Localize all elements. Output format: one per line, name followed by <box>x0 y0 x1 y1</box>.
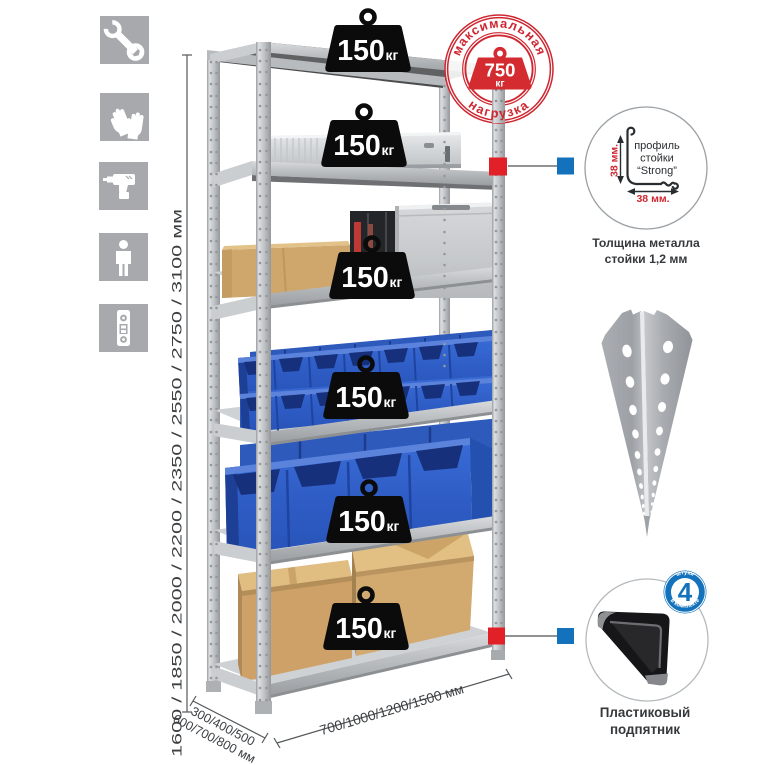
svg-text:700/1000/1200/1500 мм: 700/1000/1200/1500 мм <box>318 681 466 738</box>
svg-text:“Strong”: “Strong” <box>637 165 677 177</box>
svg-text:1600 / 1850 / 2000 / 2200 / 23: 1600 / 1850 / 2000 / 2200 / 2350 / 2550 … <box>170 209 185 757</box>
svg-text:750: 750 <box>485 60 516 81</box>
svg-text:4: 4 <box>678 577 693 607</box>
svg-text:профиль: профиль <box>634 140 680 152</box>
svg-text:38 мм.: 38 мм. <box>636 193 669 205</box>
svg-text:стойки: стойки <box>640 153 674 165</box>
svg-text:38 мм.: 38 мм. <box>609 144 621 177</box>
svg-text:Толщина металла: Толщина металла <box>592 236 700 250</box>
svg-text:Пластиковый: Пластиковый <box>600 705 690 720</box>
svg-text:стойки 1,2 мм: стойки 1,2 мм <box>605 252 688 266</box>
svg-text:кг: кг <box>495 79 504 90</box>
svg-text:подпятник: подпятник <box>610 722 680 737</box>
